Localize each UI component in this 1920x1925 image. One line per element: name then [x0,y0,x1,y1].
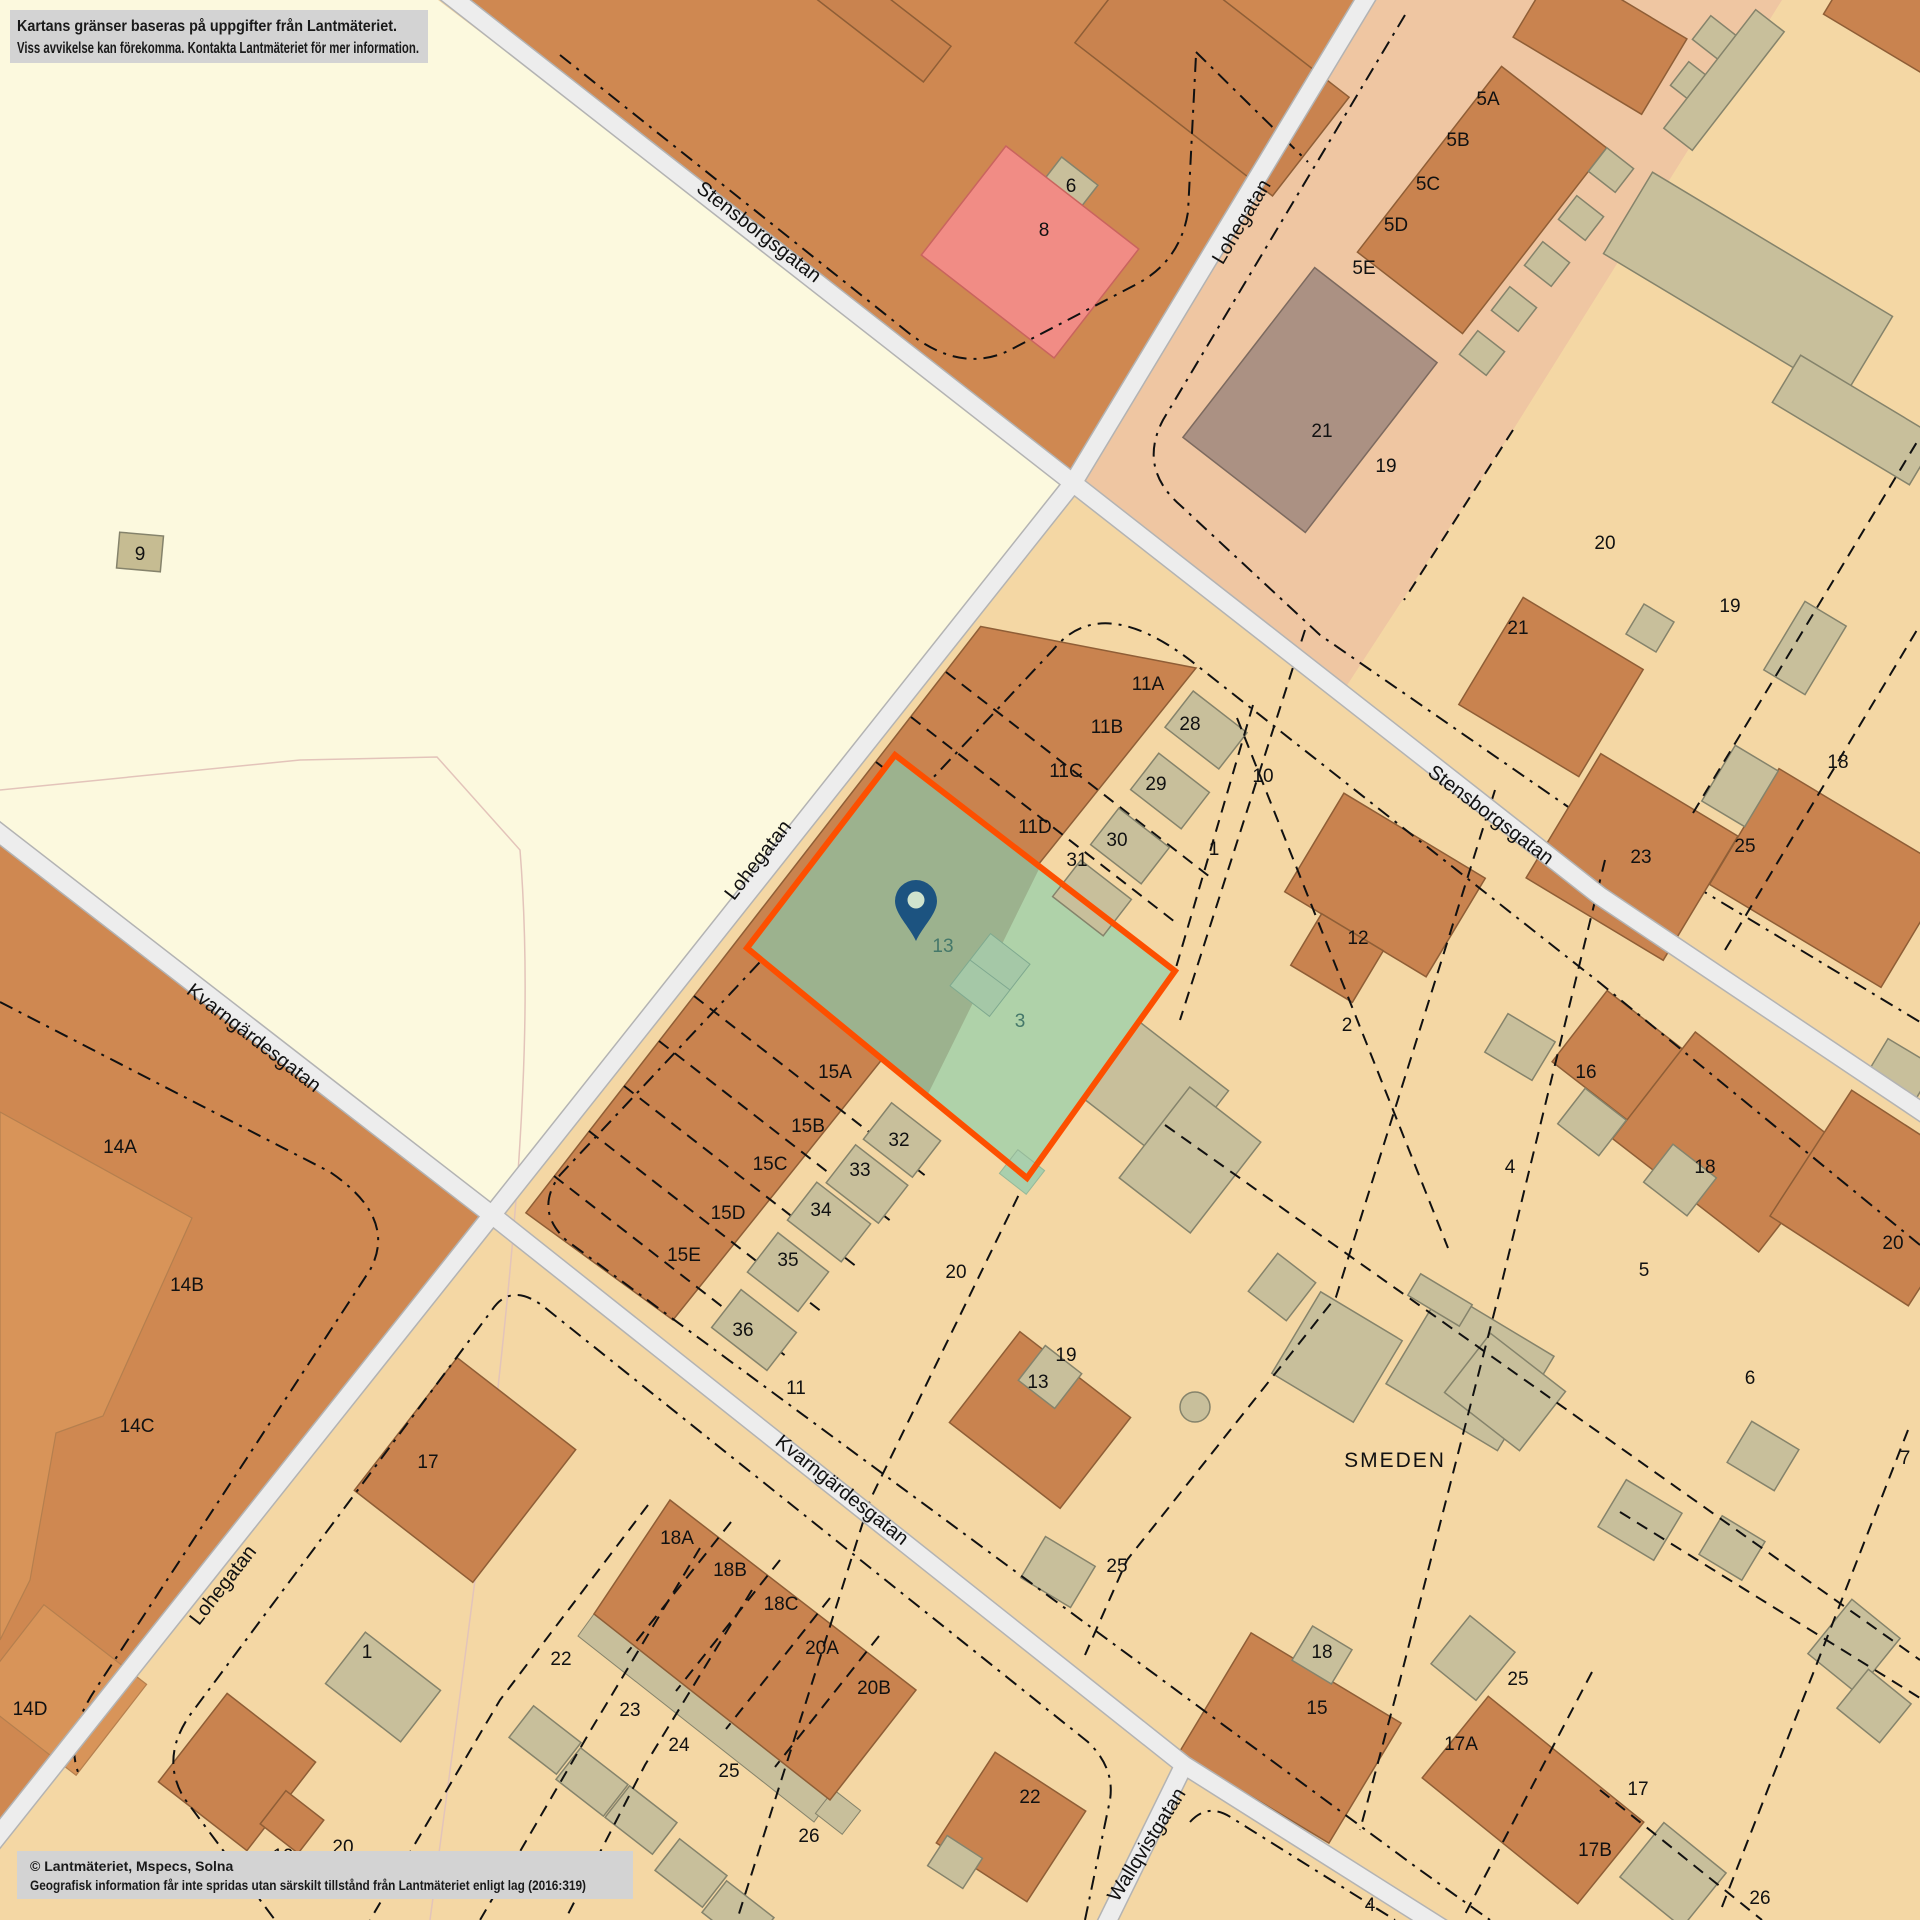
svg-text:17: 17 [1627,1779,1648,1800]
svg-text:6: 6 [1745,1368,1756,1389]
svg-text:21: 21 [1311,421,1332,442]
svg-text:5: 5 [1639,1260,1650,1281]
svg-text:13: 13 [932,936,953,957]
svg-text:15D: 15D [711,1203,746,1224]
svg-text:11C: 11C [1049,761,1082,782]
svg-text:20: 20 [945,1262,966,1283]
svg-text:19: 19 [1055,1345,1076,1366]
svg-text:15B: 15B [791,1116,825,1137]
svg-text:5D: 5D [1384,215,1408,236]
svg-text:18: 18 [1311,1642,1332,1663]
svg-text:4: 4 [1505,1157,1516,1178]
svg-text:25: 25 [1734,836,1755,857]
svg-text:29: 29 [1145,774,1166,795]
svg-text:© Lantmäteriet, Mspecs, Solna: © Lantmäteriet, Mspecs, Solna [30,1858,233,1874]
svg-text:33: 33 [849,1160,870,1181]
svg-text:22: 22 [550,1649,571,1670]
svg-text:17A: 17A [1444,1734,1478,1755]
svg-text:9: 9 [135,544,146,565]
svg-text:5B: 5B [1446,130,1469,151]
svg-text:1: 1 [362,1642,373,1663]
svg-text:20B: 20B [857,1678,891,1699]
svg-text:23: 23 [1630,847,1651,868]
svg-text:5A: 5A [1476,89,1500,110]
svg-text:19: 19 [1719,596,1740,617]
svg-text:31: 31 [1066,850,1087,871]
svg-text:11A: 11A [1132,674,1165,695]
svg-text:6: 6 [1066,176,1077,197]
svg-text:26: 26 [798,1826,819,1847]
svg-text:18B: 18B [713,1560,747,1581]
svg-text:13: 13 [1027,1372,1048,1393]
svg-text:21: 21 [1507,618,1528,639]
svg-text:36: 36 [732,1320,753,1341]
svg-text:25: 25 [718,1761,739,1782]
svg-text:20: 20 [1594,533,1615,554]
svg-text:1: 1 [1209,839,1220,860]
svg-text:Kartans gränser baseras på upp: Kartans gränser baseras på uppgifter frå… [17,17,397,35]
svg-text:26: 26 [1749,1888,1770,1909]
svg-text:20: 20 [1882,1233,1903,1254]
svg-text:11B: 11B [1091,717,1123,738]
svg-text:15C: 15C [753,1154,788,1175]
svg-text:23: 23 [619,1700,640,1721]
svg-text:18C: 18C [764,1594,799,1615]
svg-text:Geografisk information får int: Geografisk information får inte spridas … [30,1877,586,1893]
svg-text:19: 19 [1375,456,1396,477]
svg-text:14D: 14D [13,1699,48,1720]
svg-text:17B: 17B [1578,1840,1612,1861]
svg-text:24: 24 [668,1735,690,1756]
svg-text:16: 16 [1575,1062,1596,1083]
svg-text:18A: 18A [660,1528,694,1549]
svg-text:28: 28 [1179,714,1200,735]
svg-text:20A: 20A [805,1638,839,1659]
svg-text:17: 17 [417,1452,438,1473]
svg-text:SMEDEN: SMEDEN [1344,1449,1446,1472]
svg-text:15E: 15E [667,1245,701,1266]
svg-text:15: 15 [1306,1698,1327,1719]
svg-text:35: 35 [777,1250,798,1271]
svg-text:14C: 14C [120,1416,155,1437]
svg-text:15A: 15A [818,1062,852,1083]
svg-text:2: 2 [1342,1015,1353,1036]
svg-text:32: 32 [888,1130,909,1151]
svg-text:18: 18 [1827,752,1848,773]
svg-text:14B: 14B [170,1275,204,1296]
svg-text:12: 12 [1347,928,1368,949]
svg-text:5E: 5E [1352,258,1375,279]
svg-text:3: 3 [1015,1011,1026,1032]
svg-text:Viss avvikelse kan förekomma.: Viss avvikelse kan förekomma. Kontakta L… [17,40,419,57]
svg-text:14A: 14A [103,1137,137,1158]
svg-text:4: 4 [1365,1895,1376,1916]
svg-text:30: 30 [1106,830,1127,851]
svg-text:25: 25 [1106,1556,1127,1577]
svg-text:7: 7 [1900,1448,1911,1469]
svg-text:18: 18 [1694,1157,1715,1178]
svg-text:11: 11 [786,1378,806,1399]
svg-text:11D: 11D [1018,817,1051,838]
svg-text:10: 10 [1252,766,1273,787]
svg-text:5C: 5C [1416,174,1440,195]
svg-text:25: 25 [1507,1669,1528,1690]
svg-text:22: 22 [1019,1787,1040,1808]
svg-text:8: 8 [1039,220,1050,241]
svg-text:34: 34 [810,1200,832,1221]
